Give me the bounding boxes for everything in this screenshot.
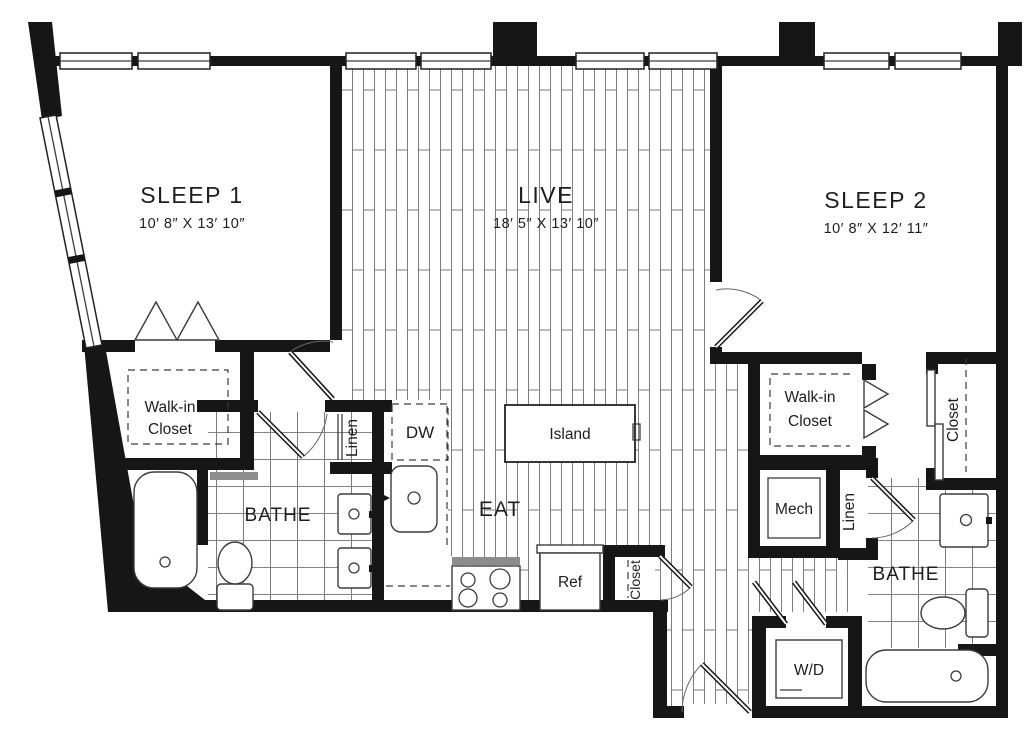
live-dimensions: 18′ 5″ X 13′ 10″ [493, 216, 599, 232]
top-left-corner-block [28, 22, 62, 120]
window-slanted-left [40, 115, 102, 348]
eat-label: EAT [479, 498, 521, 521]
dishwasher-label: DW [406, 423, 434, 442]
floor-plan-drawing: SLEEP 1 10′ 8″ X 13′ 10″ LIVE 18′ 5″ X 1… [0, 0, 1024, 732]
wd-left-wall [752, 616, 766, 706]
bathe2-label: BATHE [873, 564, 940, 585]
french-door-leaf-left [135, 302, 177, 340]
window-sleep2-a [824, 53, 889, 69]
corridor-wood-floor [710, 364, 748, 612]
walkin2-bottom-band [748, 455, 876, 470]
hall-closet-label: Closet [627, 560, 643, 600]
toilet-1 [217, 542, 253, 610]
chimney-block-2 [779, 22, 815, 66]
wd-top-stub-right [826, 616, 862, 628]
wd-right-wall [848, 616, 862, 706]
walkin1-bottom-wall [96, 458, 254, 470]
sleep2-label: SLEEP 2 [824, 187, 927, 213]
kitchen-bathe1-wall [372, 400, 384, 612]
mech-label: Mech [775, 501, 813, 518]
sleep2-closet-label: Closet [945, 397, 962, 442]
hall-step-wall [653, 600, 667, 718]
sleep2-dimensions: 10′ 8″ X 12′ 11″ [824, 221, 929, 237]
sleep2-closet-top-wall [926, 352, 996, 364]
bathe1-label: BATHE [245, 505, 312, 526]
walkin1-label-line1: Walk-in [144, 399, 195, 416]
window-live-b [421, 53, 491, 69]
live-wood-floor [342, 66, 710, 400]
walkin1-label-line2: Closet [148, 421, 193, 438]
sleep1-label: SLEEP 1 [140, 182, 243, 208]
mech-right-wall [826, 470, 840, 558]
kitchen-sink [382, 466, 437, 532]
sliding-door-panel-1 [927, 370, 935, 426]
washer-dryer-label: W/D [794, 662, 824, 679]
walkin2-label-line1: Walk-in [784, 389, 835, 406]
linen2-label: Linen [841, 493, 858, 531]
window-sleep1-a [60, 53, 132, 69]
sleep1-live-wall [330, 66, 342, 340]
refrigerator-label: Ref [558, 574, 583, 591]
mech-bottom-wall [748, 546, 840, 558]
live-sleep2-wall [710, 66, 722, 282]
hall-closet-left-wall [603, 545, 615, 612]
counter [384, 556, 452, 600]
tub-2 [866, 650, 988, 702]
window-live-d [649, 53, 717, 69]
walkin2-top-wall [710, 352, 862, 364]
top-right-corner-block [998, 22, 1022, 66]
walk-in-closet-2 [770, 374, 888, 446]
linen1-label: Linen [344, 419, 361, 457]
bifold-stub-top [862, 364, 876, 380]
live-label: LIVE [518, 182, 574, 208]
bathe1-shelf [210, 472, 258, 480]
sliding-door-panel-2 [935, 424, 943, 480]
walkin2-label-line2: Closet [788, 413, 833, 430]
stove [452, 566, 520, 610]
chimney-block-1 [493, 22, 537, 66]
vanity-2 [940, 494, 992, 547]
hall-wood-floor [667, 600, 755, 706]
island-label: Island [549, 426, 590, 443]
bifold-door-leaf-top [864, 380, 888, 408]
tub-1 [134, 472, 197, 588]
linen2-right-stub-top [866, 458, 878, 478]
linen2-right-stub-bottom [866, 538, 878, 560]
tub1-partition-wall [197, 470, 208, 545]
stove-backsplash [452, 557, 520, 565]
sleep2-door [716, 289, 762, 347]
right-exterior-wall [996, 56, 1008, 718]
bifold-door-leaf-bottom [864, 410, 888, 438]
window-sleep2-b [895, 53, 961, 69]
french-door-leaf-right [177, 302, 219, 340]
floor-plan-page: SLEEP 1 10′ 8″ X 13′ 10″ LIVE 18′ 5″ X 1… [0, 0, 1024, 732]
window-live-c [576, 53, 644, 69]
window-live-a [346, 53, 416, 69]
window-sleep1-b [138, 53, 210, 69]
sleep1-dimensions: 10′ 8″ X 13′ 10″ [139, 216, 245, 232]
